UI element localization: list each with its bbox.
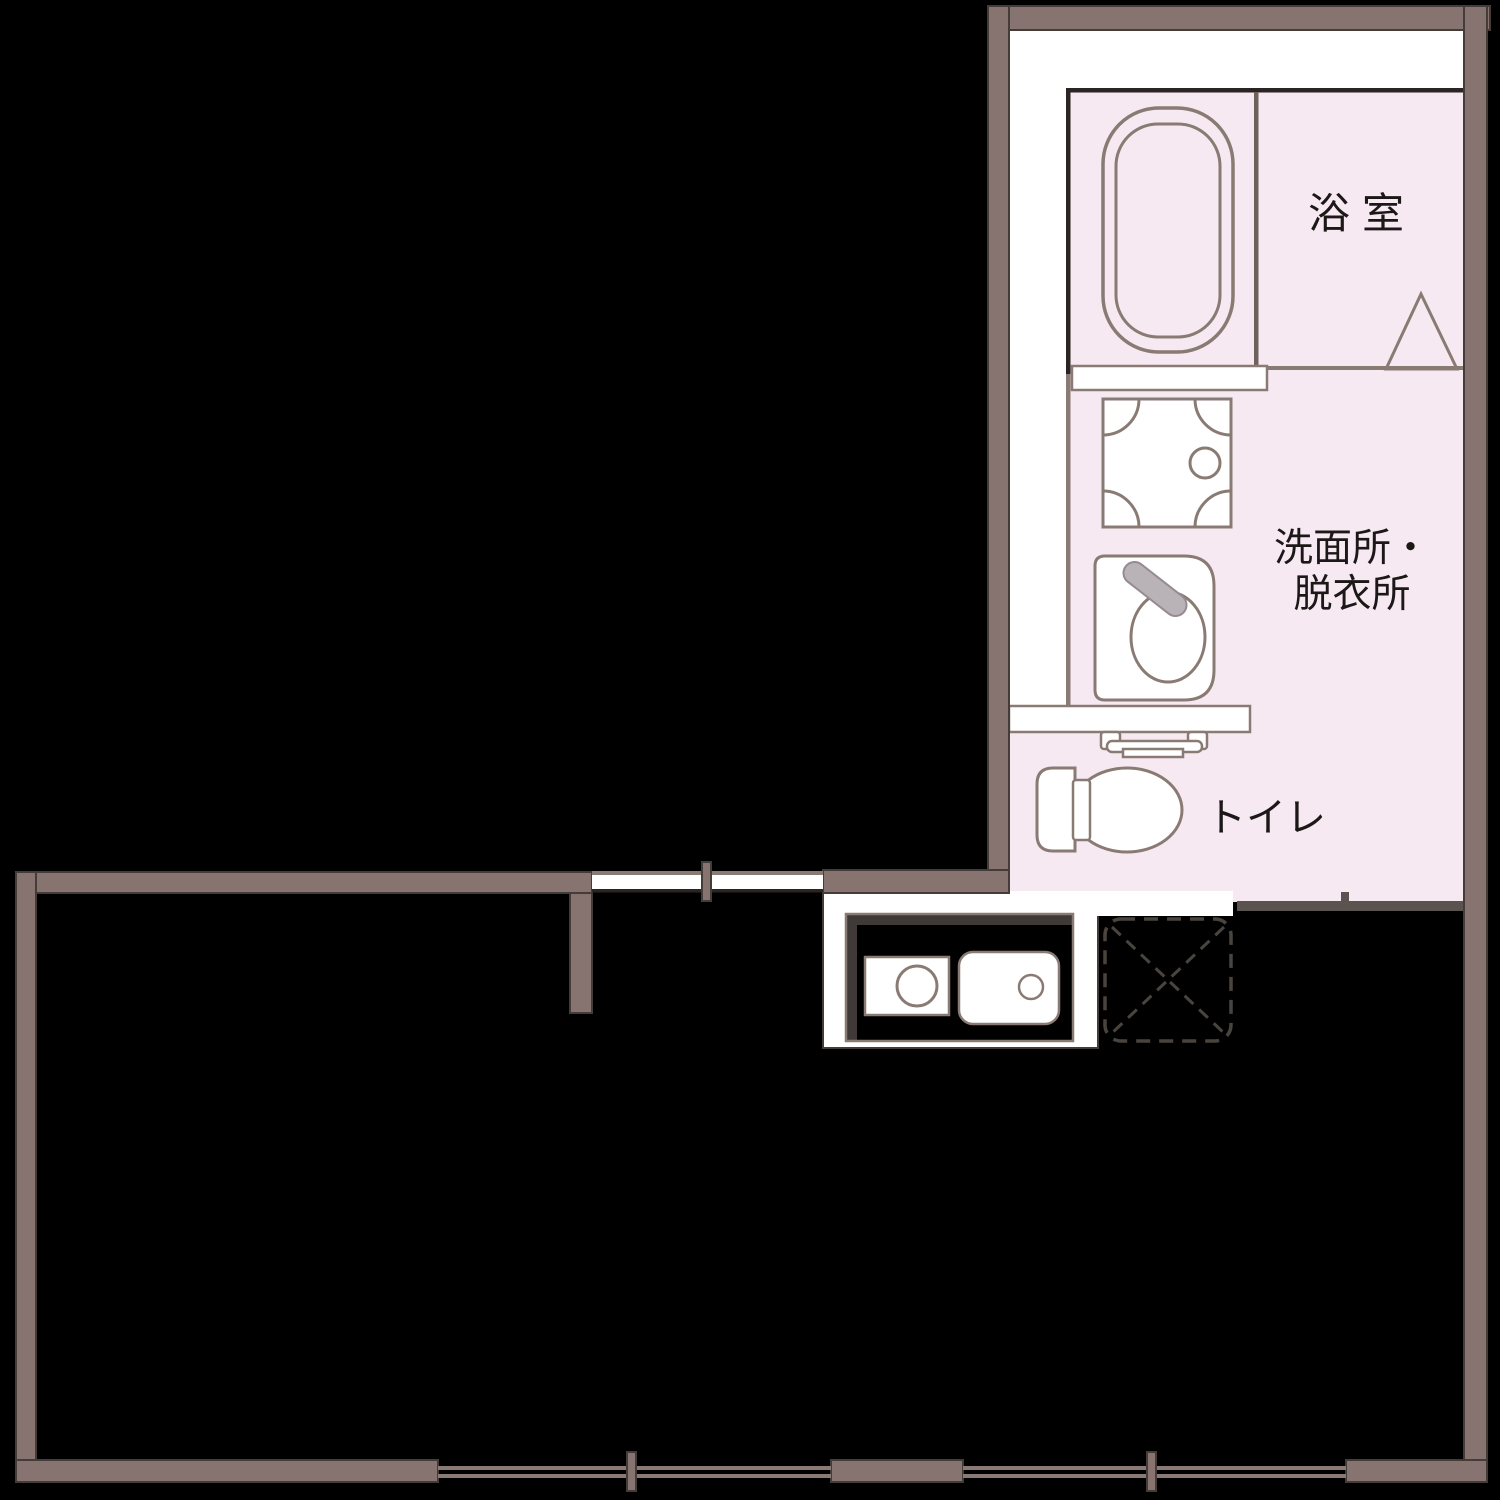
wall-block-left — [988, 6, 1009, 893]
vanity-counter — [1009, 706, 1250, 732]
toilet-label: トイレ — [1206, 795, 1326, 841]
toilet-tank — [1037, 768, 1075, 851]
toilet-icon — [1037, 768, 1182, 852]
wall-bottom-c — [1346, 1460, 1487, 1482]
window-tick — [627, 1452, 636, 1491]
bath-label: 浴室 — [1308, 189, 1416, 238]
window-bottom-left — [438, 1452, 831, 1491]
kitchen-counter — [823, 891, 1098, 1048]
window-top-tick — [702, 862, 711, 901]
stove-icon — [865, 957, 949, 1015]
toilet-hinge — [1073, 780, 1090, 840]
kitchen-counter-shadow-top — [846, 914, 1073, 925]
kitchen-counter-shadow-left — [846, 914, 857, 1041]
wall-bottom-a — [16, 1460, 438, 1482]
wall-bottom-b — [831, 1460, 963, 1482]
wall-room-left — [16, 872, 36, 1482]
bathtub-alcove-divider — [1254, 92, 1259, 368]
window-top — [592, 862, 823, 901]
window-bottom-right — [963, 1452, 1346, 1491]
washroom-left-border — [1066, 374, 1071, 706]
wall-over-kitchen — [823, 870, 1009, 893]
toilet-partition-rail — [1237, 901, 1464, 911]
bath-top-border — [1066, 88, 1464, 93]
wall-room-top — [16, 872, 592, 893]
toilet-partition-tick — [1341, 892, 1349, 911]
washbasin-icon — [1095, 556, 1214, 700]
window-tick — [1147, 1452, 1156, 1491]
floor-plan: 浴室 洗面所・ 脱衣所 トイレ — [0, 0, 1500, 1500]
bath-threshold — [1072, 366, 1267, 390]
bath-left-border — [1066, 88, 1071, 374]
wall-stub — [570, 893, 592, 1013]
wall-right — [1464, 6, 1487, 1482]
washroom-label-line2: 脱衣所 — [1293, 572, 1410, 617]
kitchen-sink-icon — [959, 952, 1059, 1024]
wall-block-top — [988, 6, 1490, 30]
washroom-label-line1: 洗面所・ — [1274, 526, 1430, 571]
refrigerator-space-icon — [1105, 919, 1231, 1041]
